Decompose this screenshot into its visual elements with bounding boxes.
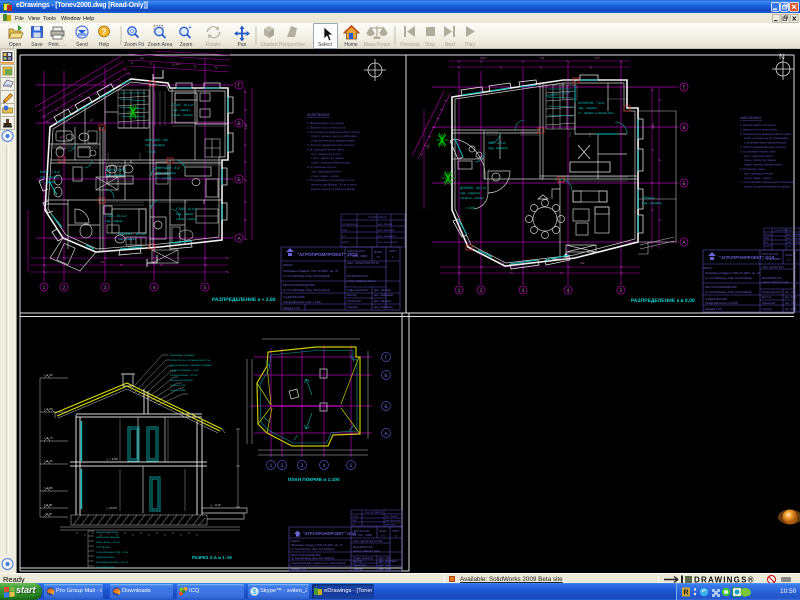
svg-text:инж. Шабанов: инж. Шабанов bbox=[787, 241, 800, 244]
svg-text:СЪГЛАСУВАЛИ: СЪГЛАСУВАЛИ bbox=[368, 216, 387, 219]
svg-text:керамични плочки: керамични плочки bbox=[96, 531, 118, 534]
svg-text:Вестор: Вестор bbox=[762, 295, 772, 299]
svg-text:под - мрамор: под - мрамор bbox=[145, 143, 165, 147]
svg-text:ТП: ТП bbox=[787, 258, 791, 262]
svg-text:под - мраморни плочи: под - мраморни плочи bbox=[311, 169, 341, 173]
svg-text:ДНЕВНА - 36,2 м²: ДНЕВНА - 36,2 м² bbox=[460, 186, 486, 190]
svg-text:под - паркет: под - паркет bbox=[105, 219, 123, 223]
svg-text:Previous: Previous bbox=[400, 42, 420, 48]
svg-text:- 0,48: - 0,48 bbox=[44, 512, 52, 516]
svg-text:под - паркет: под - паркет bbox=[118, 237, 136, 241]
svg-text:арх. Мир.: арх. Мир. bbox=[785, 295, 797, 299]
svg-text:Чертаж: Чертаж bbox=[353, 567, 363, 571]
svg-text:арх. Личева: арх. Личева bbox=[374, 299, 391, 303]
svg-text:печен бетон - 10 см.: печен бетон - 10 см. bbox=[96, 541, 121, 544]
svg-text:620: 620 bbox=[245, 124, 248, 129]
svg-text:таван - влагоустойчив латекс.: таван - влагоустойчив латекс. bbox=[744, 163, 783, 167]
svg-text:Open: Open bbox=[9, 42, 21, 48]
svg-text:СТАЯ - 15,1 м²: СТАЯ - 15,1 м² bbox=[105, 214, 127, 218]
svg-text:Save: Save bbox=[31, 42, 43, 48]
svg-text:инж. Шабанов: инж. Шабанов bbox=[378, 235, 396, 238]
svg-text:БАНЯ - 7,3 м²: БАНЯ - 7,3 м² bbox=[40, 170, 60, 174]
svg-text:525: 525 bbox=[500, 262, 505, 265]
svg-text:Print. . .: Print. . . bbox=[48, 42, 65, 48]
svg-text:1: 1 bbox=[458, 288, 461, 294]
svg-text:Вестор: Вестор bbox=[347, 293, 357, 297]
svg-text:Гл.пр.: Гл.пр. bbox=[765, 233, 772, 236]
svg-text:гр. Костинброд, общ. Костинбро: гр. Костинброд, общ. Костинброд bbox=[283, 288, 330, 292]
svg-text:ОиОТ: ОиОТ bbox=[765, 245, 772, 248]
svg-text:ЛИСТ: ЛИСТ bbox=[389, 249, 397, 253]
svg-text:240: 240 bbox=[540, 57, 545, 60]
svg-text:Next: Next bbox=[445, 42, 456, 48]
svg-text:3: 3 bbox=[104, 285, 107, 291]
svg-text:ЛИСТ: ЛИСТ bbox=[392, 529, 400, 533]
svg-text:гр. Костинброд, общ. Костинбро: гр. Костинброд, общ. Костинброд bbox=[705, 276, 752, 280]
svg-text:4: 4 bbox=[567, 288, 570, 294]
svg-text:457: 457 bbox=[140, 57, 145, 60]
svg-text:2: 2 bbox=[63, 285, 66, 291]
svg-text:Р - ХХХ - 2008: Р - ХХХ - 2008 bbox=[347, 254, 367, 258]
svg-text:5: 5 bbox=[350, 463, 353, 469]
svg-text:Чертаж: Чертаж bbox=[762, 307, 772, 311]
svg-text:S: S bbox=[252, 589, 257, 596]
svg-text:ОВК: ОВК bbox=[342, 229, 348, 232]
svg-text:298: 298 bbox=[150, 261, 155, 264]
svg-text:СЪДЪРЖАНИЕ: Разрез А-А; План п: СЪДЪРЖАНИЕ: Разрез А-А; План покрив bbox=[291, 561, 346, 565]
svg-text:+ 3,79: + 3,79 bbox=[44, 436, 53, 440]
svg-text:ТП: ТП bbox=[376, 255, 380, 259]
svg-text:телят е длъжен да се съобразяв: телят е длъжен да се съобразява bbox=[744, 136, 788, 140]
svg-text:Rotate: Rotate bbox=[206, 42, 221, 48]
svg-text:стени, таван - латекс: стени, таван - латекс bbox=[311, 174, 340, 178]
svg-text:под - мрамор: под - мрамор bbox=[488, 146, 508, 150]
svg-text:Р - ХХХ - 2008: Р - ХХХ - 2008 bbox=[762, 257, 781, 261]
svg-text:БАНЯ - 2,6 м²: БАНЯ - 2,6 м² bbox=[106, 168, 126, 172]
svg-text:инж. Василев: инж. Василев bbox=[378, 229, 395, 232]
svg-text:Проектант: Проектант bbox=[762, 301, 776, 305]
svg-text:под - мраморни плочи: под - мраморни плочи bbox=[744, 171, 773, 175]
svg-text:1. Всички мерки са в метри.: 1. Всички мерки са в метри. bbox=[307, 121, 345, 125]
svg-text:5: 5 bbox=[204, 285, 207, 291]
svg-text:5. В санитарни възли, бани -: 5. В санитарни възли, бани - bbox=[740, 149, 777, 153]
svg-text:ОиОТ: ОиОТ bbox=[342, 241, 349, 244]
svg-text:под - паркет: под - паркет bbox=[176, 212, 194, 216]
svg-text:въхна конструкция: въхна конструкция bbox=[170, 379, 193, 382]
svg-text:гр. Костинброд, общ. Костинбро: гр. Костинброд, общ. Костинброд bbox=[705, 290, 752, 294]
svg-text:Чертаж: Чертаж bbox=[347, 305, 357, 309]
svg-text:4: 4 bbox=[153, 285, 156, 291]
svg-text:СЪГЛАСУВАЛИ: СЪГЛАСУВАЛИ bbox=[365, 511, 383, 514]
svg-text:2. Вратите са от летва стока.: 2. Вратите са от летва стока. bbox=[740, 127, 778, 131]
svg-text:3: 3 bbox=[522, 288, 525, 294]
svg-text:под - мрамор: под - мрамор bbox=[156, 171, 176, 175]
svg-text:арх. Лич.: арх. Лич. bbox=[785, 301, 797, 305]
svg-text:СИГНАТУРА: СИГНАТУРА bbox=[762, 252, 778, 256]
svg-text:телят е длъжен да се съобразяв: телят е длъжен да се съобразява bbox=[311, 134, 357, 138]
svg-text:+ 2,40: + 2,40 bbox=[44, 459, 53, 463]
svg-text:1: 1 bbox=[270, 463, 273, 469]
svg-text:ст. - фаянс и латекс боя: ст. - фаянс и латекс боя bbox=[578, 111, 614, 115]
svg-text:таван - влагоустойчив латекс.: таван - влагоустойчив латекс. bbox=[311, 161, 351, 165]
svg-text:арх. Лич.: арх. Лич. bbox=[785, 290, 797, 294]
svg-text:ТП: ТП bbox=[381, 534, 385, 538]
svg-text:Home: Home bbox=[344, 42, 358, 48]
svg-text:Антон Павлов Тонев: Антон Павлов Тонев bbox=[347, 279, 376, 283]
svg-text:± 0,00: ± 0,00 bbox=[44, 503, 53, 507]
svg-text:Ел.: Ел. bbox=[765, 241, 769, 244]
svg-text:Г: Г bbox=[238, 83, 241, 89]
svg-text:РАЗПРЕДЕЛЕНИЕ к в 0,00: РАЗПРЕДЕЛЕНИЕ к в 0,00 bbox=[631, 298, 695, 304]
svg-text:R: R bbox=[683, 589, 688, 596]
svg-text:1: 1 bbox=[43, 285, 46, 291]
svg-text:КОРИДОР - 6м²: КОРИДОР - 6м² bbox=[145, 138, 168, 142]
svg-text:Select: Select bbox=[318, 42, 333, 48]
svg-text:4. Топлото преминава през сте: 4. Топлото преминава през стените. bbox=[740, 145, 787, 149]
svg-text:разпер таван: разпер таван bbox=[170, 389, 186, 392]
svg-text:ръчките обшивка - 2 см.: ръчките обшивка - 2 см. bbox=[170, 369, 199, 372]
svg-text:Част: АРХИТЕКТУРНА: Част: АРХИТЕКТУРНА bbox=[347, 261, 379, 265]
svg-text:△ ±0,00: △ ±0,00 bbox=[106, 506, 117, 510]
svg-text:ЗАБЕЛЕЖКИ:: ЗАБЕЛЕЖКИ: bbox=[740, 116, 762, 120]
svg-text:РАЗРЕЗ А-А м 1: 50: РАЗРЕЗ А-А м 1: 50 bbox=[192, 555, 233, 560]
svg-text:Проектант: Проектант bbox=[347, 299, 362, 303]
svg-text:ОБЕКТ:: ОБЕКТ: bbox=[283, 263, 294, 267]
svg-text:СИГНАТУРА: СИГНАТУРА bbox=[347, 249, 364, 253]
svg-text:арх. Личева: арх. Личева bbox=[787, 233, 800, 236]
svg-text:Ел.: Ел. bbox=[352, 523, 356, 526]
svg-text:ХОЛ - 4,6 м²: ХОЛ - 4,6 м² bbox=[488, 141, 506, 145]
svg-text:СЪДЪРЖАНИЕ:: СЪДЪРЖАНИЕ: bbox=[283, 295, 306, 299]
svg-text:под - мрамор: под - мрамор bbox=[642, 201, 662, 205]
svg-text:под - паркет: под - паркет bbox=[172, 108, 190, 112]
svg-text:керемидни "Брамац": керемидни "Брамац" bbox=[170, 354, 195, 357]
svg-text:стени, таван - латекс: стени, таван - латекс bbox=[744, 176, 772, 180]
svg-text:под - теракот: под - теракот bbox=[578, 106, 598, 110]
svg-text:арх. Личева: арх. Личева bbox=[378, 223, 393, 226]
svg-text:PVC фолио: PVC фолио bbox=[96, 546, 111, 549]
svg-text:ОВК: ОВК bbox=[765, 237, 770, 240]
svg-text:топлоизолация ХПЕ - 8 см.: топлоизолация ХПЕ - 8 см. bbox=[96, 551, 129, 554]
svg-text:инж. Веселинов: инж. Веселинов bbox=[378, 241, 398, 244]
svg-text:Г: Г bbox=[683, 85, 686, 91]
svg-text:Разпределение кота + 2,80: Разпределение кота + 2,80 bbox=[283, 300, 321, 304]
svg-text:ФАЗА: ФАЗА bbox=[374, 250, 382, 254]
svg-text:стени - латекс: стени - латекс bbox=[172, 113, 193, 117]
svg-text:инж. Шаб.: инж. Шаб. bbox=[385, 523, 396, 526]
svg-text:гр. Костинброд, общ. Костинбро: гр. Костинброд, общ. Костинброд bbox=[283, 274, 330, 278]
svg-text:3. За всички последващи работ: 3. За всички последващи работи строи- bbox=[307, 130, 360, 134]
svg-text:140: 140 bbox=[595, 57, 600, 60]
svg-text:390.2: 390.2 bbox=[480, 57, 487, 60]
svg-text:7. По размерите в кръжещите п: 7. По размерите в кръжещите положения bbox=[740, 180, 794, 184]
svg-text:N: N bbox=[779, 52, 785, 61]
svg-text:арх. Личева: арх. Личева bbox=[385, 515, 399, 518]
svg-text:5. В санитарни възли, бани -: 5. В санитарни възли, бани - bbox=[307, 147, 345, 151]
svg-text:Zoom Area: Zoom Area bbox=[148, 42, 173, 48]
svg-text:△ + 2,80: △ + 2,80 bbox=[106, 457, 118, 461]
svg-text:под - теракотни плочи,: под - теракотни плочи, bbox=[311, 152, 342, 156]
svg-text:± 0,00: ± 0,00 bbox=[466, 206, 475, 210]
svg-text:Send: Send bbox=[76, 42, 88, 48]
svg-text:Zoom: Zoom bbox=[180, 42, 193, 48]
svg-text:Разпределение к в 0,00: Разпределение к в 0,00 bbox=[705, 301, 738, 305]
svg-text:+: + bbox=[188, 25, 191, 31]
svg-text:Роден архитект: Роден архитект bbox=[347, 288, 369, 292]
svg-text:Stop: Stop bbox=[425, 42, 436, 48]
svg-text:Жилищна сграда в УПИ VII-2007,: Жилищна сграда в УПИ VII-2007, кв. 70 bbox=[283, 269, 338, 273]
svg-text:гр. Костинброд, общ. Костинбро: гр. Костинброд, общ. Костинброд bbox=[291, 556, 335, 560]
svg-text:ОВК: ОВК bbox=[352, 519, 357, 522]
svg-text:5: 5 bbox=[620, 288, 623, 294]
svg-text:△ - 0,45: △ - 0,45 bbox=[210, 503, 221, 507]
svg-text:инж. Вес.: инж. Вес. bbox=[787, 245, 798, 248]
svg-text:7. По размерите в кръжещите п: 7. По размерите в кръжещите поло- bbox=[307, 178, 355, 182]
svg-text:арх. Мир.: арх. Мир. bbox=[379, 567, 391, 571]
svg-text:бетонова настилка - 10 см.: бетонова настилка - 10 см. bbox=[96, 561, 129, 564]
svg-text:жения от фебруари - Е см. в по: жения от фебруари - Е см. в поло- bbox=[311, 183, 357, 187]
svg-text:+ 2,80: + 2,80 bbox=[147, 150, 156, 154]
svg-text:топлоизолация - 10 см.: топлоизолация - 10 см. bbox=[170, 374, 198, 377]
svg-text:4. Топлото преминава през сте: 4. Топлото преминава през стените. bbox=[307, 143, 356, 147]
svg-text:2. Вратите са от летва стока.: 2. Вратите са от летва стока. bbox=[307, 125, 346, 129]
svg-text:6. Служебна стена -: 6. Служебна стена - bbox=[740, 167, 766, 171]
svg-text:2: 2 bbox=[480, 288, 483, 294]
svg-text:3. За всички последващи работ: 3. За всички последващи работи строи- bbox=[740, 132, 792, 136]
svg-text:?: ? bbox=[102, 28, 107, 37]
svg-text:арх. Мир.: арх. Мир. bbox=[785, 307, 797, 311]
svg-text:МЕСТОНАХОЖДЕНИЕ:: МЕСТОНАХОЖДЕНИЕ: bbox=[705, 285, 738, 289]
svg-text:Част: АРХИТЕКТ.: Част: АРХИТЕКТ. bbox=[762, 265, 785, 269]
svg-text:"АГРОПРОМПРОЕКТ" ООД: "АГРОПРОМПРОЕКТ" ООД bbox=[303, 531, 356, 536]
svg-text:под - теракот: под - теракот bbox=[106, 173, 126, 177]
svg-text:хидроизолация - мушама "Брамац: хидроизолация - мушама "Брамац" bbox=[170, 364, 213, 367]
svg-text:Perspective: Perspective bbox=[279, 42, 305, 48]
svg-text:ФАЗА: ФАЗА bbox=[785, 253, 793, 257]
svg-text:Мащаб 1:50: Мащаб 1:50 bbox=[283, 306, 300, 310]
svg-text:хидроизолация: хидроизолация bbox=[96, 556, 115, 559]
svg-text:арх. Мирчева: арх. Мирчева bbox=[374, 293, 393, 297]
svg-text:СТАЯ - 16,4 м²: СТАЯ - 16,4 м² bbox=[176, 207, 198, 211]
svg-text:Pan: Pan bbox=[238, 42, 247, 48]
svg-text:298: 298 bbox=[580, 262, 585, 265]
svg-text:КОРИДОР - 8 м²: КОРИДОР - 8 м² bbox=[156, 166, 180, 170]
svg-text:ФАЗА: ФАЗА bbox=[379, 529, 387, 533]
svg-text:Ел.: Ел. bbox=[342, 235, 346, 238]
svg-text:покрив 2 х М: покрив 2 х М bbox=[170, 384, 185, 387]
svg-text:Мащаб 1:50: Мащаб 1:50 bbox=[705, 307, 722, 311]
svg-text:стените - латекс: стените - латекс bbox=[460, 196, 485, 200]
svg-text:Роден архитект: Роден архитект bbox=[762, 290, 783, 294]
svg-text:КУХНЕНО - 7,9 м²: КУХНЕНО - 7,9 м² bbox=[578, 101, 605, 105]
svg-text:РАЗПРЕДЕЛЕНИЕ к + 2,80: РАЗПРЕДЕЛЕНИЕ к + 2,80 bbox=[212, 297, 276, 303]
svg-text:1. Всички мерки са в метри.: 1. Всички мерки са в метри. bbox=[740, 123, 776, 127]
svg-text:Help: Help bbox=[99, 42, 110, 48]
svg-text:4: 4 bbox=[323, 463, 326, 469]
svg-text:инж. Василев: инж. Василев bbox=[787, 237, 800, 240]
svg-text:Р - ХХХ - 2008: Р - ХХХ - 2008 bbox=[353, 533, 372, 537]
svg-text:гр. Костинброд, общ. Костинбро: гр. Костинброд, общ. Костинброд bbox=[291, 547, 335, 551]
svg-text:КАБИНЕТ - 10,2 м²: КАБИНЕТ - 10,2 м² bbox=[118, 232, 146, 236]
svg-text:арх. Личева: арх. Личева bbox=[374, 288, 391, 292]
svg-text:ОБЕКТ:: ОБЕКТ: bbox=[703, 266, 714, 270]
svg-text:+ 4,20: + 4,20 bbox=[44, 407, 53, 411]
svg-text:ТЕРАСА: ТЕРАСА bbox=[642, 196, 655, 200]
svg-text:СЪГЛАСУВАЛИ: СЪГЛАСУВАЛИ bbox=[774, 229, 792, 232]
svg-text:Гл.пр.: Гл.пр. bbox=[352, 515, 359, 518]
svg-text:летви 5/4 см, поставени на 50: летви 5/4 см, поставени на 50 см. bbox=[170, 359, 211, 362]
svg-text:Част: АРХИТЕКТУРНА: Част: АРХИТЕКТУРНА bbox=[353, 539, 383, 543]
svg-text:Shaded: Shaded bbox=[260, 42, 277, 48]
svg-text:Антон Павлов Тонев: Антон Павлов Тонев bbox=[353, 549, 380, 553]
svg-text:ВЪЗЛОЖИТЕЛ:: ВЪЗЛОЖИТЕЛ: bbox=[347, 274, 369, 278]
svg-text:жените корите ку работни мрежи: жените корите ку работни мрежи. bbox=[311, 187, 356, 191]
svg-text:под - теракотни плочи,: под - теракотни плочи, bbox=[744, 154, 774, 158]
svg-text:под - паркета: под - паркета bbox=[460, 191, 480, 195]
svg-text:Гл.проектант: Гл.проектант bbox=[342, 223, 358, 226]
svg-text:Play: Play bbox=[465, 42, 475, 48]
svg-text:инж. Василев: инж. Василев bbox=[385, 519, 401, 522]
svg-text:Антон Павлов Тонев: Антон Павлов Тонев bbox=[762, 280, 789, 284]
svg-text:3: 3 bbox=[301, 463, 304, 469]
svg-text:ст. - латекс: ст. - латекс bbox=[156, 176, 173, 180]
svg-text:Мащаб 1:50: Мащаб 1:50 bbox=[291, 567, 307, 571]
svg-text:под - теракот: под - теракот bbox=[40, 175, 60, 179]
svg-text:2: 2 bbox=[281, 463, 284, 469]
svg-text:1255: 1255 bbox=[652, 123, 655, 129]
svg-text:+ 0,80: + 0,80 bbox=[44, 486, 53, 490]
svg-text:циментова замазка: циментова замазка bbox=[96, 536, 120, 539]
svg-text:525: 525 bbox=[100, 261, 105, 264]
svg-text:МЕСТОНАХОЖДЕНИЕ:: МЕСТОНАХОЖДЕНИЕ: bbox=[283, 283, 316, 287]
svg-text:стени - фаянс до тавана: стени - фаянс до тавана bbox=[311, 156, 344, 160]
svg-text:ПЛАН ПОКРИВ м 1:100: ПЛАН ПОКРИВ м 1:100 bbox=[288, 477, 340, 482]
svg-text:уплътнен насип: уплътнен насип bbox=[96, 566, 116, 569]
svg-text:арх. Мирчева: арх. Мирчева bbox=[374, 305, 393, 309]
svg-text:с изпълнителната документация.: с изпълнителната документация. bbox=[744, 141, 787, 145]
svg-text:с изпълнителната документация.: с изпълнителната документация. bbox=[311, 139, 356, 143]
svg-text:6. Стълбищна клетка -: 6. Стълбищна клетка - bbox=[307, 165, 337, 169]
svg-text:Г: Г bbox=[385, 355, 388, 361]
svg-text:СТАЯ - 16,1 м²: СТАЯ - 16,1 м² bbox=[172, 103, 194, 107]
svg-text:корите ку работни мрежи от фиб: корите ку работни мрежи от фибро. bbox=[744, 185, 791, 189]
svg-text:Жилищна сграда в УПИ VII-2007,: Жилищна сграда в УПИ VII-2007, кв. 70 bbox=[705, 271, 760, 275]
svg-text:стени - тапети: стени - тапети bbox=[176, 217, 197, 221]
svg-text:стени - фаянс до тавана: стени - фаянс до тавана bbox=[744, 158, 776, 162]
svg-text:382.5: 382.5 bbox=[175, 63, 182, 66]
svg-text:ст. - фаянс: ст. - фаянс bbox=[40, 180, 56, 184]
svg-text:Zoom Fit: Zoom Fit bbox=[124, 42, 144, 48]
svg-text:Mass Props: Mass Props bbox=[364, 42, 391, 48]
svg-text:ЗАБЕЛЕЖКИ:: ЗАБЕЛЕЖКИ: bbox=[307, 113, 330, 117]
svg-text:+ 7,40: + 7,40 bbox=[44, 373, 53, 377]
